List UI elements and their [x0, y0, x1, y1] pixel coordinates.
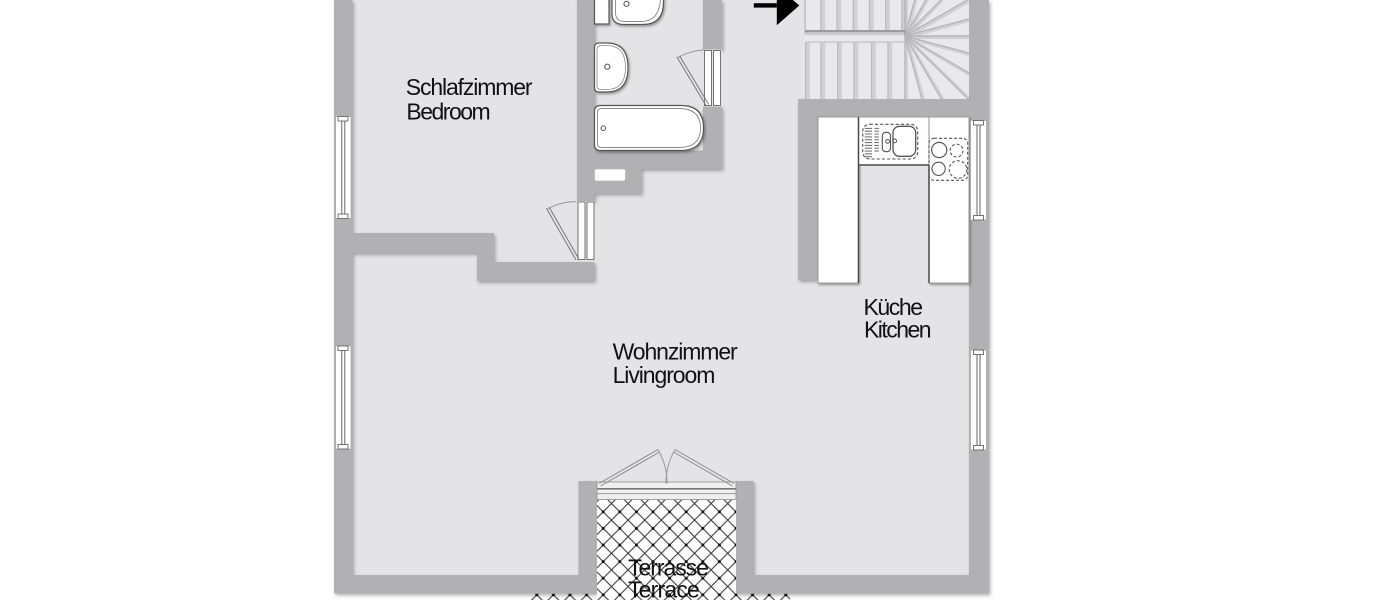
svg-text:Schlafzimmer: Schlafzimmer — [406, 74, 533, 100]
svg-text:Bedroom: Bedroom — [406, 99, 490, 125]
svg-text:Wohnzimmer: Wohnzimmer — [613, 339, 738, 365]
svg-text:Terrace: Terrace — [628, 577, 700, 600]
svg-text:Kitchen: Kitchen — [864, 316, 932, 342]
svg-text:Livingroom: Livingroom — [613, 362, 716, 388]
